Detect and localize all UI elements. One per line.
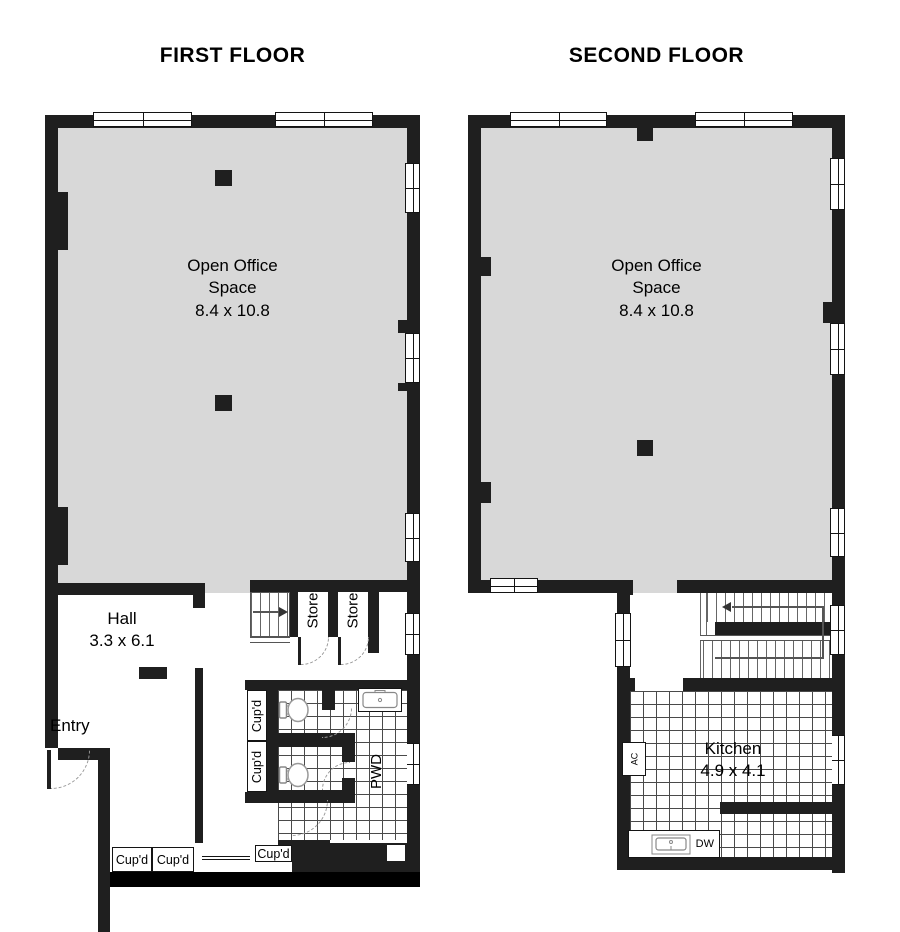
wall [245, 792, 267, 803]
unit-recess [387, 845, 405, 861]
window [275, 112, 373, 127]
open-office-floor [481, 128, 832, 582]
open-office-floor [58, 128, 407, 583]
office-opening [633, 582, 677, 593]
stair-arrow-icon [279, 607, 288, 617]
entry-label: Entry [50, 716, 90, 736]
wall [45, 583, 205, 595]
kitchen-counter: DW [628, 830, 720, 858]
stair-arrow-icon [722, 602, 731, 612]
window [93, 112, 192, 127]
first-floor-title: FIRST FLOOR [45, 44, 420, 68]
wall [468, 115, 481, 592]
dishwasher-label: DW [696, 838, 714, 850]
door-swing-arc [51, 750, 90, 789]
sink-icon [651, 834, 691, 855]
window [405, 513, 420, 562]
stair-treads [703, 641, 830, 678]
column [215, 395, 232, 411]
wall-pier [481, 482, 491, 503]
wall [193, 583, 205, 608]
wall [328, 583, 338, 637]
stair-direction-line [715, 657, 824, 659]
stair-direction-line [253, 611, 279, 613]
office-opening [205, 583, 250, 593]
window [405, 613, 420, 655]
ac-unit: AC [622, 742, 646, 776]
wall-pier [58, 507, 68, 565]
toilet-icon [278, 695, 310, 725]
column [215, 170, 232, 186]
room-label-kitchen: Kitchen 4.9 x 4.1 [663, 738, 803, 783]
toilet-icon [278, 760, 310, 790]
store-room-label: Store [338, 585, 368, 635]
stair-direction-line [822, 606, 824, 659]
second-floor-title: SECOND FLOOR [468, 44, 845, 68]
window [830, 158, 845, 210]
room-label-open-office: Open Office Space 8.4 x 10.8 [574, 255, 739, 322]
window [615, 613, 631, 667]
threshold [202, 856, 250, 860]
window [830, 605, 845, 655]
column [637, 440, 653, 456]
room-label-open-office: Open Office Space 8.4 x 10.8 [150, 255, 315, 322]
door-swing-arc [341, 637, 369, 665]
wall [98, 872, 420, 887]
wall [98, 748, 110, 932]
door-swing-arc [301, 637, 329, 665]
wall-pier [617, 678, 635, 691]
wall [45, 115, 58, 748]
wall-pier [637, 128, 653, 141]
wall [267, 690, 278, 803]
window [830, 323, 845, 375]
floorplan-sheet: FIRST FLOOR SECOND FLOOR [0, 0, 900, 932]
window [695, 112, 793, 127]
stall-partition-wall [342, 747, 355, 762]
column [139, 667, 167, 679]
window [405, 743, 420, 785]
cupboard: Cup'd [255, 845, 292, 862]
wall [617, 857, 845, 870]
sink-icon [359, 689, 401, 711]
wall-pier [481, 257, 491, 276]
wall-pier [823, 302, 832, 323]
cupboard: Cup'd [152, 847, 194, 872]
stair-landing-wall [715, 622, 830, 635]
wall [322, 687, 335, 710]
cupboard: Cup'd [112, 847, 152, 872]
wall-pier [398, 320, 407, 333]
pwd-room-label: PWD [365, 740, 387, 802]
stair-landing-edge [250, 637, 290, 643]
store-room-label: Store [298, 585, 328, 635]
cupboard: Cup'd [247, 690, 267, 741]
window [830, 508, 845, 557]
wall [368, 583, 379, 653]
room-label-hall: Hall 3.3 x 6.1 [57, 608, 187, 653]
stall-partition-wall [278, 733, 355, 747]
wall-pier [58, 192, 68, 250]
sink-unit [358, 688, 402, 712]
wall [195, 668, 203, 843]
wall [677, 580, 845, 593]
window [510, 112, 607, 127]
stair-direction-line [732, 606, 824, 608]
wall [683, 678, 832, 691]
window [490, 578, 538, 593]
first-floor-plan: Store Store Cup'd Cup'd PWD [45, 112, 421, 892]
second-floor-plan: AC DW Open Office Space 8.4 x 10.8 Kitch… [468, 112, 846, 882]
window [405, 333, 420, 383]
wall-pier [398, 383, 407, 391]
window [405, 163, 420, 213]
wall [720, 802, 832, 814]
cupboard: Cup'd [247, 741, 267, 792]
window [830, 735, 845, 785]
